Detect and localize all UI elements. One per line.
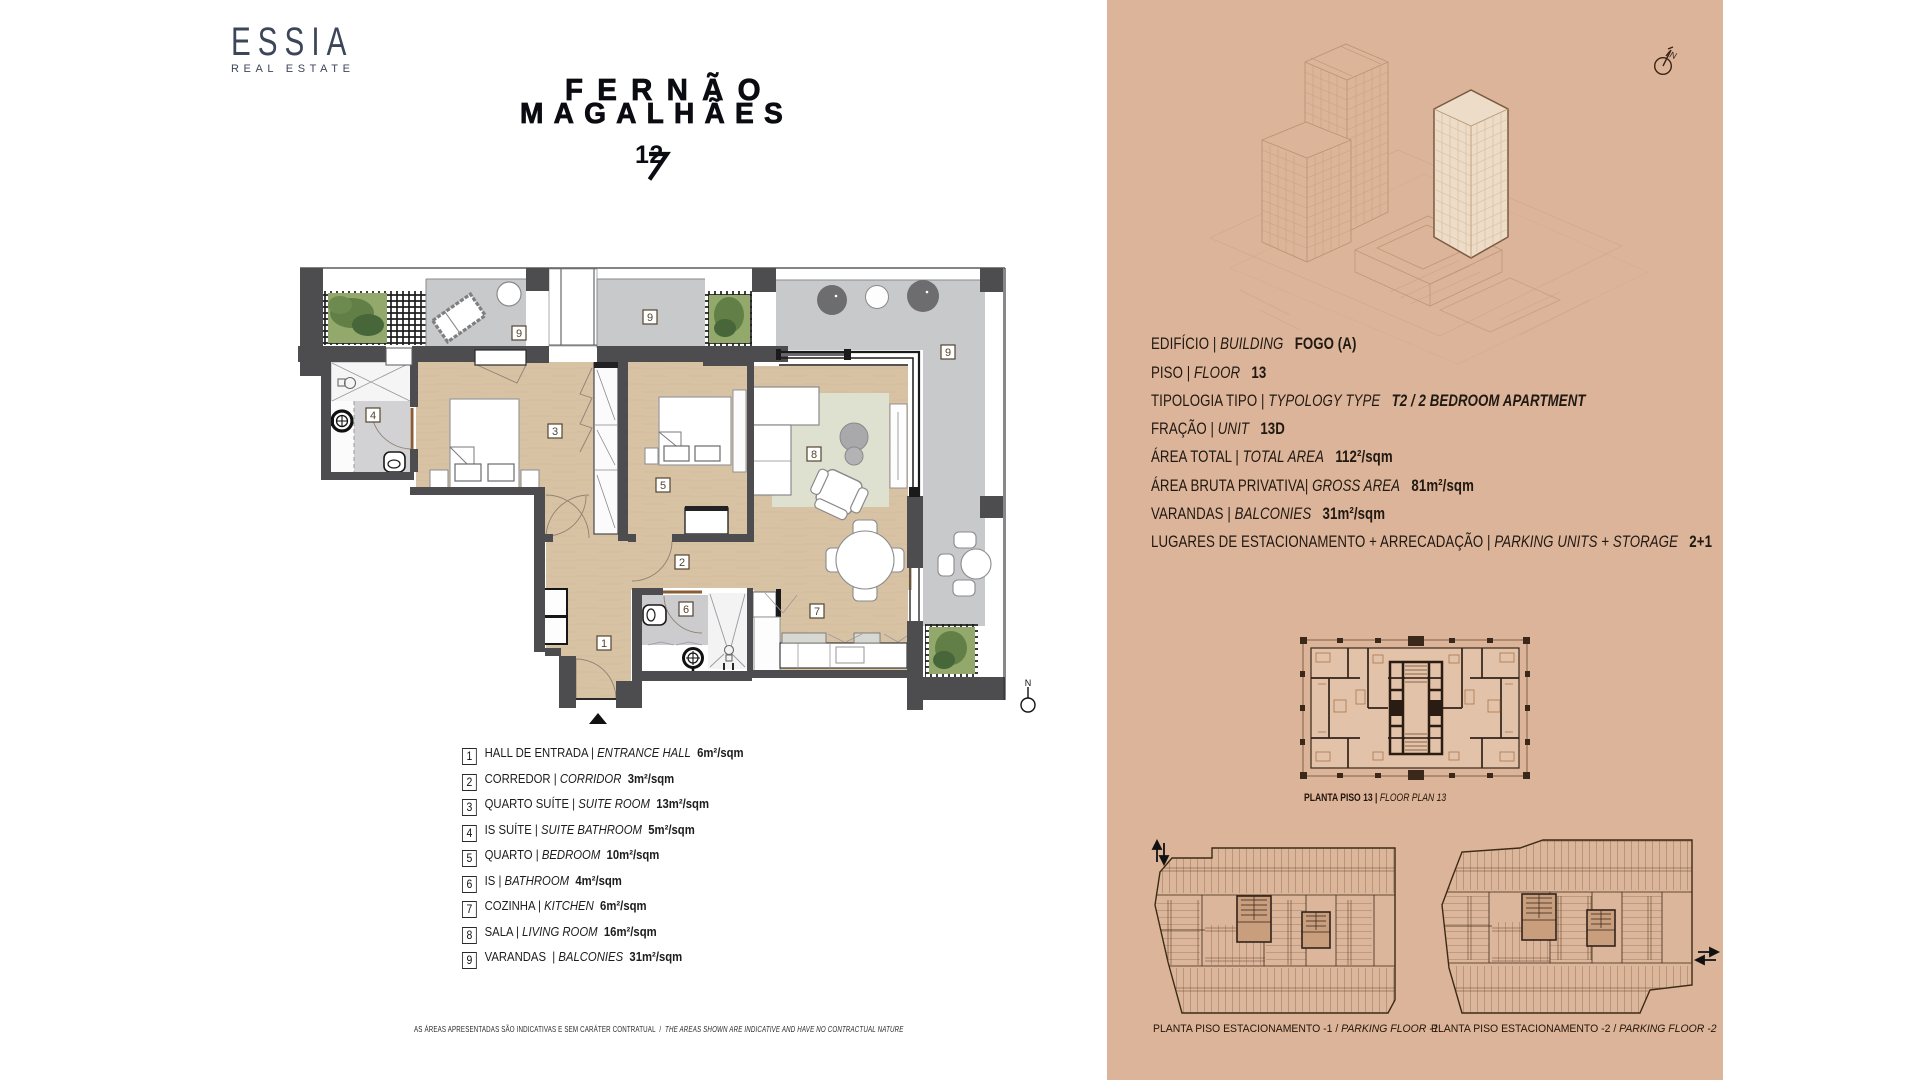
svg-text:5: 5 [660, 480, 666, 492]
svg-text:4: 4 [370, 410, 376, 422]
svg-text:9: 9 [516, 328, 522, 340]
svg-text:N: N [1025, 678, 1032, 688]
svg-text:1: 1 [601, 638, 607, 650]
svg-text:9: 9 [945, 347, 951, 359]
svg-text:7: 7 [814, 606, 820, 618]
svg-text:2: 2 [679, 557, 685, 569]
svg-text:3: 3 [552, 426, 558, 438]
svg-text:9: 9 [647, 312, 653, 324]
svg-text:6: 6 [683, 604, 689, 616]
svg-text:8: 8 [811, 449, 817, 461]
